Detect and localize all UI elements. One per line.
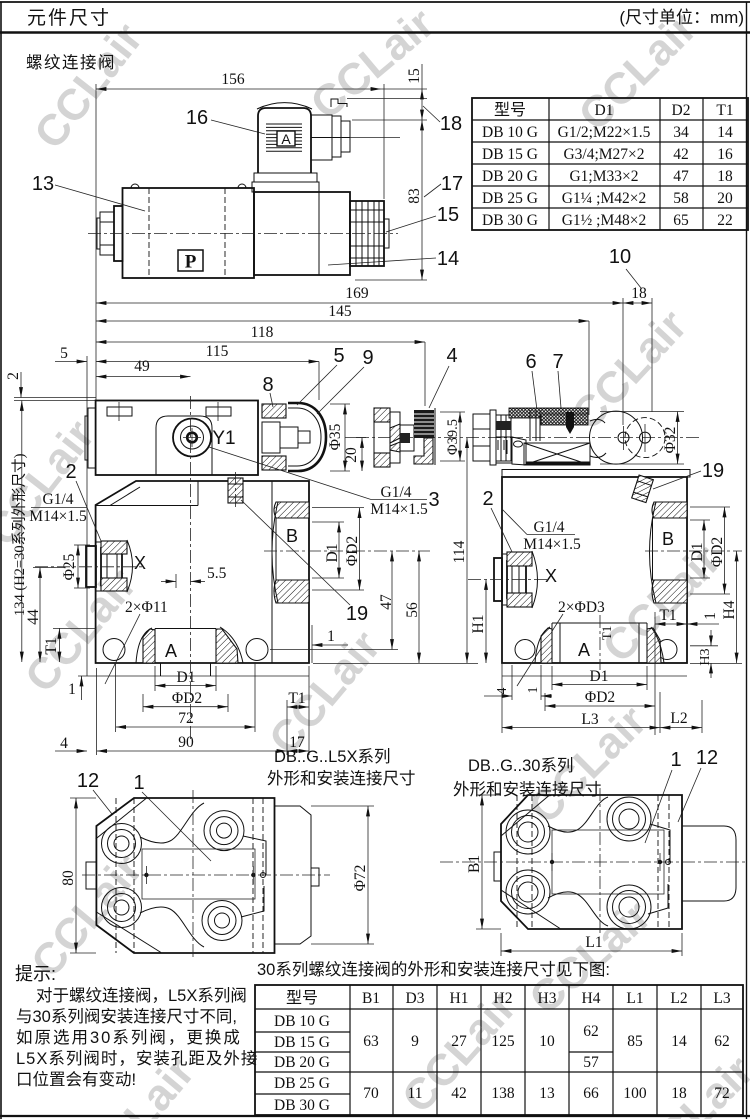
svg-text:138: 138	[491, 1085, 515, 1102]
svg-text:1: 1	[702, 612, 719, 620]
svg-text:6: 6	[525, 351, 536, 373]
svg-text:2×Φ11: 2×Φ11	[125, 599, 168, 616]
svg-text:DB..G..30系列: DB..G..30系列	[468, 756, 573, 775]
svg-text:X: X	[545, 566, 557, 586]
svg-text:G1;M33×2: G1;M33×2	[569, 168, 638, 185]
svg-text:9: 9	[411, 1033, 419, 1050]
svg-text:83: 83	[406, 188, 423, 204]
svg-text:DB 25 G: DB 25 G	[274, 1075, 330, 1092]
svg-text:11: 11	[408, 1085, 423, 1102]
svg-text:18: 18	[717, 168, 733, 185]
svg-text:提示:: 提示:	[15, 964, 56, 984]
svg-text:12: 12	[77, 770, 99, 792]
svg-text:19: 19	[346, 603, 368, 625]
svg-text:57: 57	[583, 1054, 599, 1071]
svg-text:72: 72	[178, 710, 194, 727]
svg-text:115: 115	[206, 343, 229, 360]
svg-text:18: 18	[440, 113, 462, 135]
svg-text:5: 5	[333, 345, 344, 367]
svg-text:16: 16	[717, 146, 733, 163]
svg-text:D1: D1	[177, 669, 196, 686]
svg-text:M14×1.5: M14×1.5	[29, 508, 87, 525]
svg-text:D1: D1	[595, 102, 614, 119]
svg-text:G1/4: G1/4	[534, 519, 565, 536]
svg-text:CCLair: CCLair	[626, 1046, 750, 1119]
svg-text:5: 5	[60, 345, 68, 362]
svg-text:12: 12	[696, 747, 718, 769]
svg-text:42: 42	[673, 146, 689, 163]
svg-text:2: 2	[482, 488, 493, 510]
svg-text:2: 2	[65, 461, 76, 483]
svg-text:2: 2	[5, 372, 22, 380]
svg-text:(尺寸单位：mm): (尺寸单位：mm)	[619, 8, 744, 27]
svg-text:8: 8	[262, 374, 273, 396]
svg-text:H3: H3	[538, 990, 557, 1007]
svg-text:3: 3	[428, 489, 439, 511]
svg-text:口位置会有变动!: 口位置会有变动!	[16, 1070, 136, 1089]
svg-text:对于螺纹连接阀，L5X系列阀: 对于螺纹连接阀，L5X系列阀	[36, 986, 247, 1005]
svg-text:15: 15	[406, 68, 423, 84]
svg-text:B: B	[662, 529, 674, 549]
svg-text:DB 10 G: DB 10 G	[274, 1013, 330, 1030]
svg-text:18: 18	[631, 285, 647, 302]
svg-text:D3: D3	[406, 990, 425, 1007]
svg-text:G1/2;M22×1.5: G1/2;M22×1.5	[558, 124, 651, 141]
svg-text:A: A	[165, 641, 177, 661]
svg-text:20: 20	[343, 447, 360, 463]
svg-text:H1: H1	[450, 990, 469, 1007]
svg-text:H4: H4	[582, 990, 601, 1007]
svg-text:与30系列阀安装连接尺寸不同,: 与30系列阀安装连接尺寸不同,	[16, 1007, 237, 1026]
svg-text:44: 44	[25, 609, 42, 625]
svg-text:100: 100	[623, 1085, 647, 1102]
svg-text:14: 14	[717, 124, 733, 141]
svg-text:X: X	[134, 553, 146, 573]
svg-text:T1: T1	[599, 626, 614, 640]
svg-text:13: 13	[32, 173, 54, 195]
svg-text:125: 125	[491, 1033, 515, 1050]
svg-text:L3: L3	[581, 711, 598, 728]
svg-text:Φ72: Φ72	[352, 865, 369, 892]
svg-text:D2: D2	[672, 102, 691, 119]
svg-text:18: 18	[671, 1085, 687, 1102]
svg-text:D1: D1	[590, 668, 609, 685]
svg-text:14: 14	[437, 248, 459, 270]
svg-text:型号: 型号	[494, 101, 526, 119]
svg-text:L1: L1	[585, 934, 602, 951]
svg-text:1: 1	[670, 749, 681, 771]
svg-text:ΦD2: ΦD2	[709, 537, 726, 567]
svg-text:DB 15 G: DB 15 G	[482, 146, 538, 163]
svg-text:58: 58	[673, 190, 689, 207]
svg-text:DB 20 G: DB 20 G	[274, 1054, 330, 1071]
svg-text:1: 1	[525, 687, 540, 694]
svg-text:70: 70	[363, 1085, 379, 1102]
svg-text:62: 62	[583, 1023, 599, 1040]
svg-text:19: 19	[702, 460, 724, 482]
svg-text:22: 22	[717, 212, 733, 229]
svg-text:15: 15	[437, 204, 459, 226]
svg-text:型号: 型号	[286, 989, 318, 1007]
svg-text:B1: B1	[466, 855, 483, 873]
svg-text:螺纹连接阀: 螺纹连接阀	[26, 53, 116, 72]
svg-text:72: 72	[714, 1085, 730, 1102]
svg-text:H2: H2	[494, 990, 513, 1007]
svg-text:外形和安装连接尺寸: 外形和安装连接尺寸	[267, 769, 416, 788]
svg-text:元件尺寸: 元件尺寸	[27, 7, 111, 29]
svg-text:D1: D1	[324, 544, 341, 563]
svg-text:DB 25 G: DB 25 G	[482, 190, 538, 207]
svg-text:ΦD2: ΦD2	[585, 689, 615, 706]
svg-text:A: A	[281, 131, 291, 147]
svg-text:90: 90	[178, 734, 194, 751]
svg-text:156: 156	[221, 71, 245, 88]
svg-text:49: 49	[134, 358, 150, 375]
svg-text:G3/4;M27×2: G3/4;M27×2	[563, 146, 644, 163]
svg-text:Y1: Y1	[212, 428, 235, 449]
svg-text:134 (H2=30系列外形尺寸): 134 (H2=30系列外形尺寸)	[11, 453, 28, 616]
svg-text:14: 14	[671, 1033, 687, 1050]
svg-text:D1: D1	[689, 543, 706, 562]
svg-text:34: 34	[673, 124, 689, 141]
svg-text:17: 17	[441, 173, 463, 195]
svg-text:20: 20	[717, 190, 733, 207]
svg-text:Φ32: Φ32	[662, 427, 679, 454]
svg-text:Φ25: Φ25	[61, 553, 78, 580]
svg-text:47: 47	[673, 168, 689, 185]
svg-text:ΦD2: ΦD2	[344, 536, 361, 566]
svg-text:66: 66	[583, 1085, 599, 1102]
svg-text:5.5: 5.5	[207, 565, 227, 582]
svg-text:85: 85	[627, 1033, 643, 1050]
svg-text:L1: L1	[626, 990, 643, 1007]
svg-text:DB 10 G: DB 10 G	[482, 124, 538, 141]
svg-text:H1: H1	[470, 615, 487, 634]
svg-text:CCLair: CCLair	[260, 622, 390, 764]
svg-text:2×ΦD3: 2×ΦD3	[558, 599, 605, 616]
svg-text:62: 62	[714, 1033, 730, 1050]
svg-text:G1½ ;M48×2: G1½ ;M48×2	[562, 212, 647, 229]
svg-text:1: 1	[68, 681, 76, 698]
svg-text:13: 13	[539, 1085, 555, 1102]
svg-text:16: 16	[186, 107, 208, 129]
svg-text:Φ35: Φ35	[327, 423, 344, 450]
svg-text:M14×1.5: M14×1.5	[523, 536, 581, 553]
svg-text:H4: H4	[721, 600, 738, 619]
svg-text:B: B	[286, 526, 298, 546]
svg-text:4: 4	[446, 345, 457, 367]
svg-text:9: 9	[362, 347, 373, 369]
svg-text:DB 30 G: DB 30 G	[482, 212, 538, 229]
svg-text:1: 1	[327, 628, 335, 645]
svg-text:DB 30 G: DB 30 G	[274, 1097, 330, 1114]
svg-text:T1: T1	[43, 637, 60, 654]
svg-text:27: 27	[451, 1033, 467, 1050]
svg-text:42: 42	[451, 1085, 467, 1102]
svg-text:10: 10	[539, 1033, 555, 1050]
svg-text:DB 20 G: DB 20 G	[482, 168, 538, 185]
svg-text:65: 65	[673, 212, 689, 229]
svg-text:169: 169	[345, 285, 369, 302]
svg-text:80: 80	[60, 870, 77, 886]
svg-text:M14×1.5: M14×1.5	[370, 501, 428, 518]
svg-text:56: 56	[404, 602, 421, 618]
svg-text:30系列螺纹连接阀的外形和安装连接尺寸见下图:: 30系列螺纹连接阀的外形和安装连接尺寸见下图:	[257, 960, 610, 979]
svg-text:G1¼ ;M42×2: G1¼ ;M42×2	[562, 190, 647, 207]
svg-text:H3: H3	[698, 648, 713, 665]
svg-text:ΦD2: ΦD2	[172, 690, 202, 707]
svg-text:G1/4: G1/4	[381, 484, 412, 501]
svg-text:47: 47	[378, 594, 395, 610]
svg-text:4: 4	[494, 687, 509, 694]
svg-text:1: 1	[133, 772, 144, 794]
svg-text:10: 10	[609, 246, 631, 268]
svg-text:T1: T1	[288, 690, 305, 707]
svg-text:L3: L3	[713, 990, 730, 1007]
svg-text:T1: T1	[659, 607, 676, 624]
svg-text:B1: B1	[362, 990, 380, 1007]
svg-text:4: 4	[60, 735, 68, 752]
svg-text:L2: L2	[670, 990, 687, 1007]
svg-text:A: A	[578, 640, 590, 660]
svg-text:CCLair: CCLair	[25, 14, 152, 158]
svg-text:Φ39.5: Φ39.5	[445, 419, 461, 455]
svg-text:7: 7	[552, 351, 563, 373]
svg-text:G1/4: G1/4	[43, 491, 74, 508]
svg-text:118: 118	[251, 324, 274, 341]
svg-text:63: 63	[363, 1033, 379, 1050]
svg-text:L5X系列阀时，安装孔距及外接: L5X系列阀时，安装孔距及外接	[16, 1049, 258, 1068]
svg-text:L2: L2	[670, 710, 687, 727]
svg-text:如原选用30系列阀，更换成: 如原选用30系列阀，更换成	[16, 1028, 242, 1047]
svg-text:DB 15 G: DB 15 G	[274, 1034, 330, 1051]
svg-text:114: 114	[451, 540, 468, 563]
svg-text:P: P	[185, 252, 197, 273]
svg-text:T1: T1	[716, 102, 733, 119]
svg-text:DB..G..L5X系列: DB..G..L5X系列	[274, 747, 390, 766]
svg-text:145: 145	[328, 303, 352, 320]
